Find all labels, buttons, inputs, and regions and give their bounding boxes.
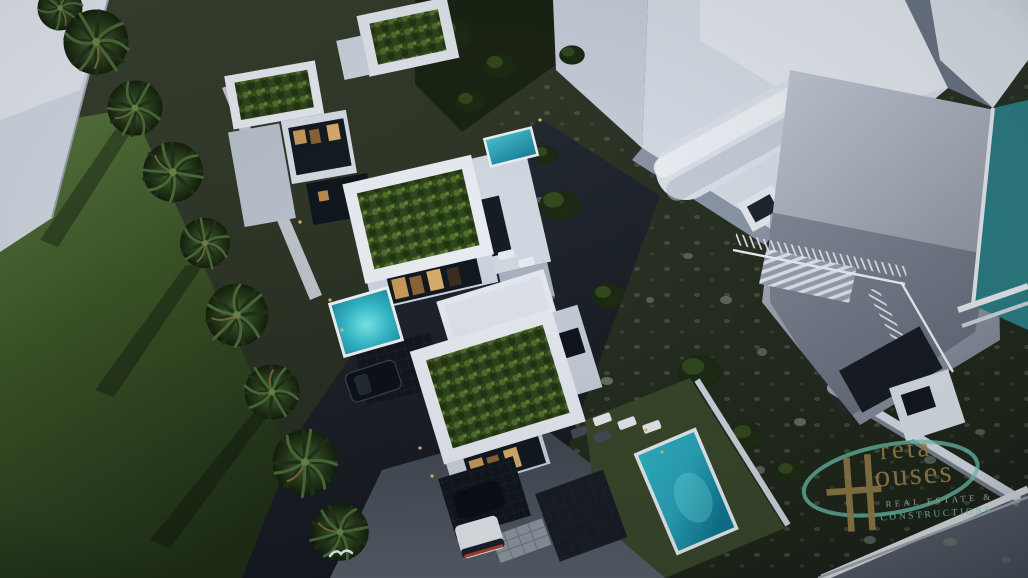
scene-svg bbox=[0, 0, 1028, 578]
aerial-render: reta ouses REAL ESTATE & CONSTRUCTIONS bbox=[0, 0, 1028, 578]
dusk-vignette bbox=[0, 0, 1028, 578]
